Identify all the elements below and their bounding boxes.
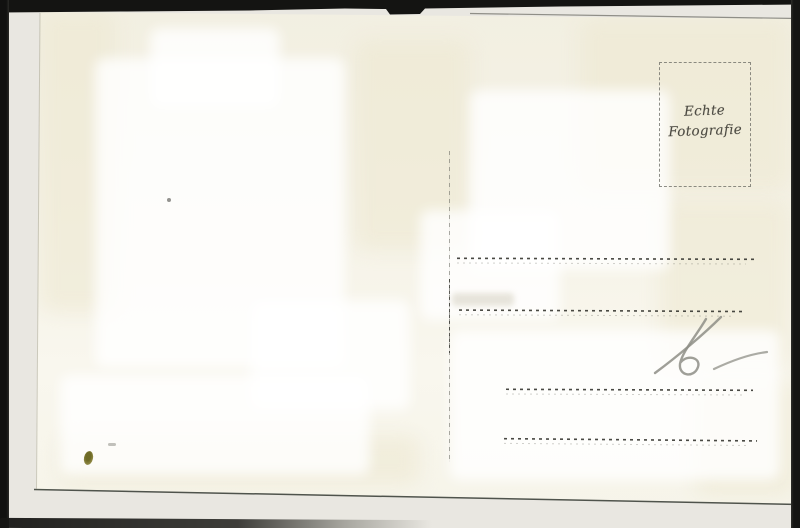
- scan-highlight: [150, 28, 280, 108]
- address-line-1: [457, 257, 758, 265]
- dust-speck: [108, 443, 116, 446]
- scan-frame-bottom: [0, 517, 432, 528]
- postcard-scan: Echte Fotografie: [0, 0, 800, 528]
- stamp-box-label: Echte Fotografie: [667, 100, 742, 143]
- scan-frame-right: [791, 0, 800, 528]
- stamp-label-line2: Fotografie: [668, 120, 742, 143]
- address-line-3: [506, 388, 753, 396]
- scan-highlight: [60, 375, 370, 475]
- dust-speck: [172, 499, 180, 506]
- handwritten-number: [638, 312, 773, 382]
- stamp-box: Echte Fotografie: [659, 62, 751, 187]
- scan-highlight: [470, 90, 670, 270]
- scan-shade: [355, 40, 470, 250]
- divider-line: [449, 151, 450, 462]
- faint-smudge: [452, 293, 514, 306]
- scan-shade: [40, 12, 115, 312]
- dust-speck: [167, 198, 171, 202]
- stain-spot: [83, 450, 95, 466]
- scan-shade: [695, 380, 795, 495]
- dust-speck: [116, 496, 121, 503]
- postcard-back: Echte Fotografie: [0, 0, 800, 528]
- divider-line-dark-segment: [449, 279, 450, 353]
- scan-highlight: [250, 300, 410, 410]
- scan-frame-left: [0, 0, 9, 528]
- scan-highlight: [95, 58, 345, 368]
- address-line-4: [504, 438, 757, 447]
